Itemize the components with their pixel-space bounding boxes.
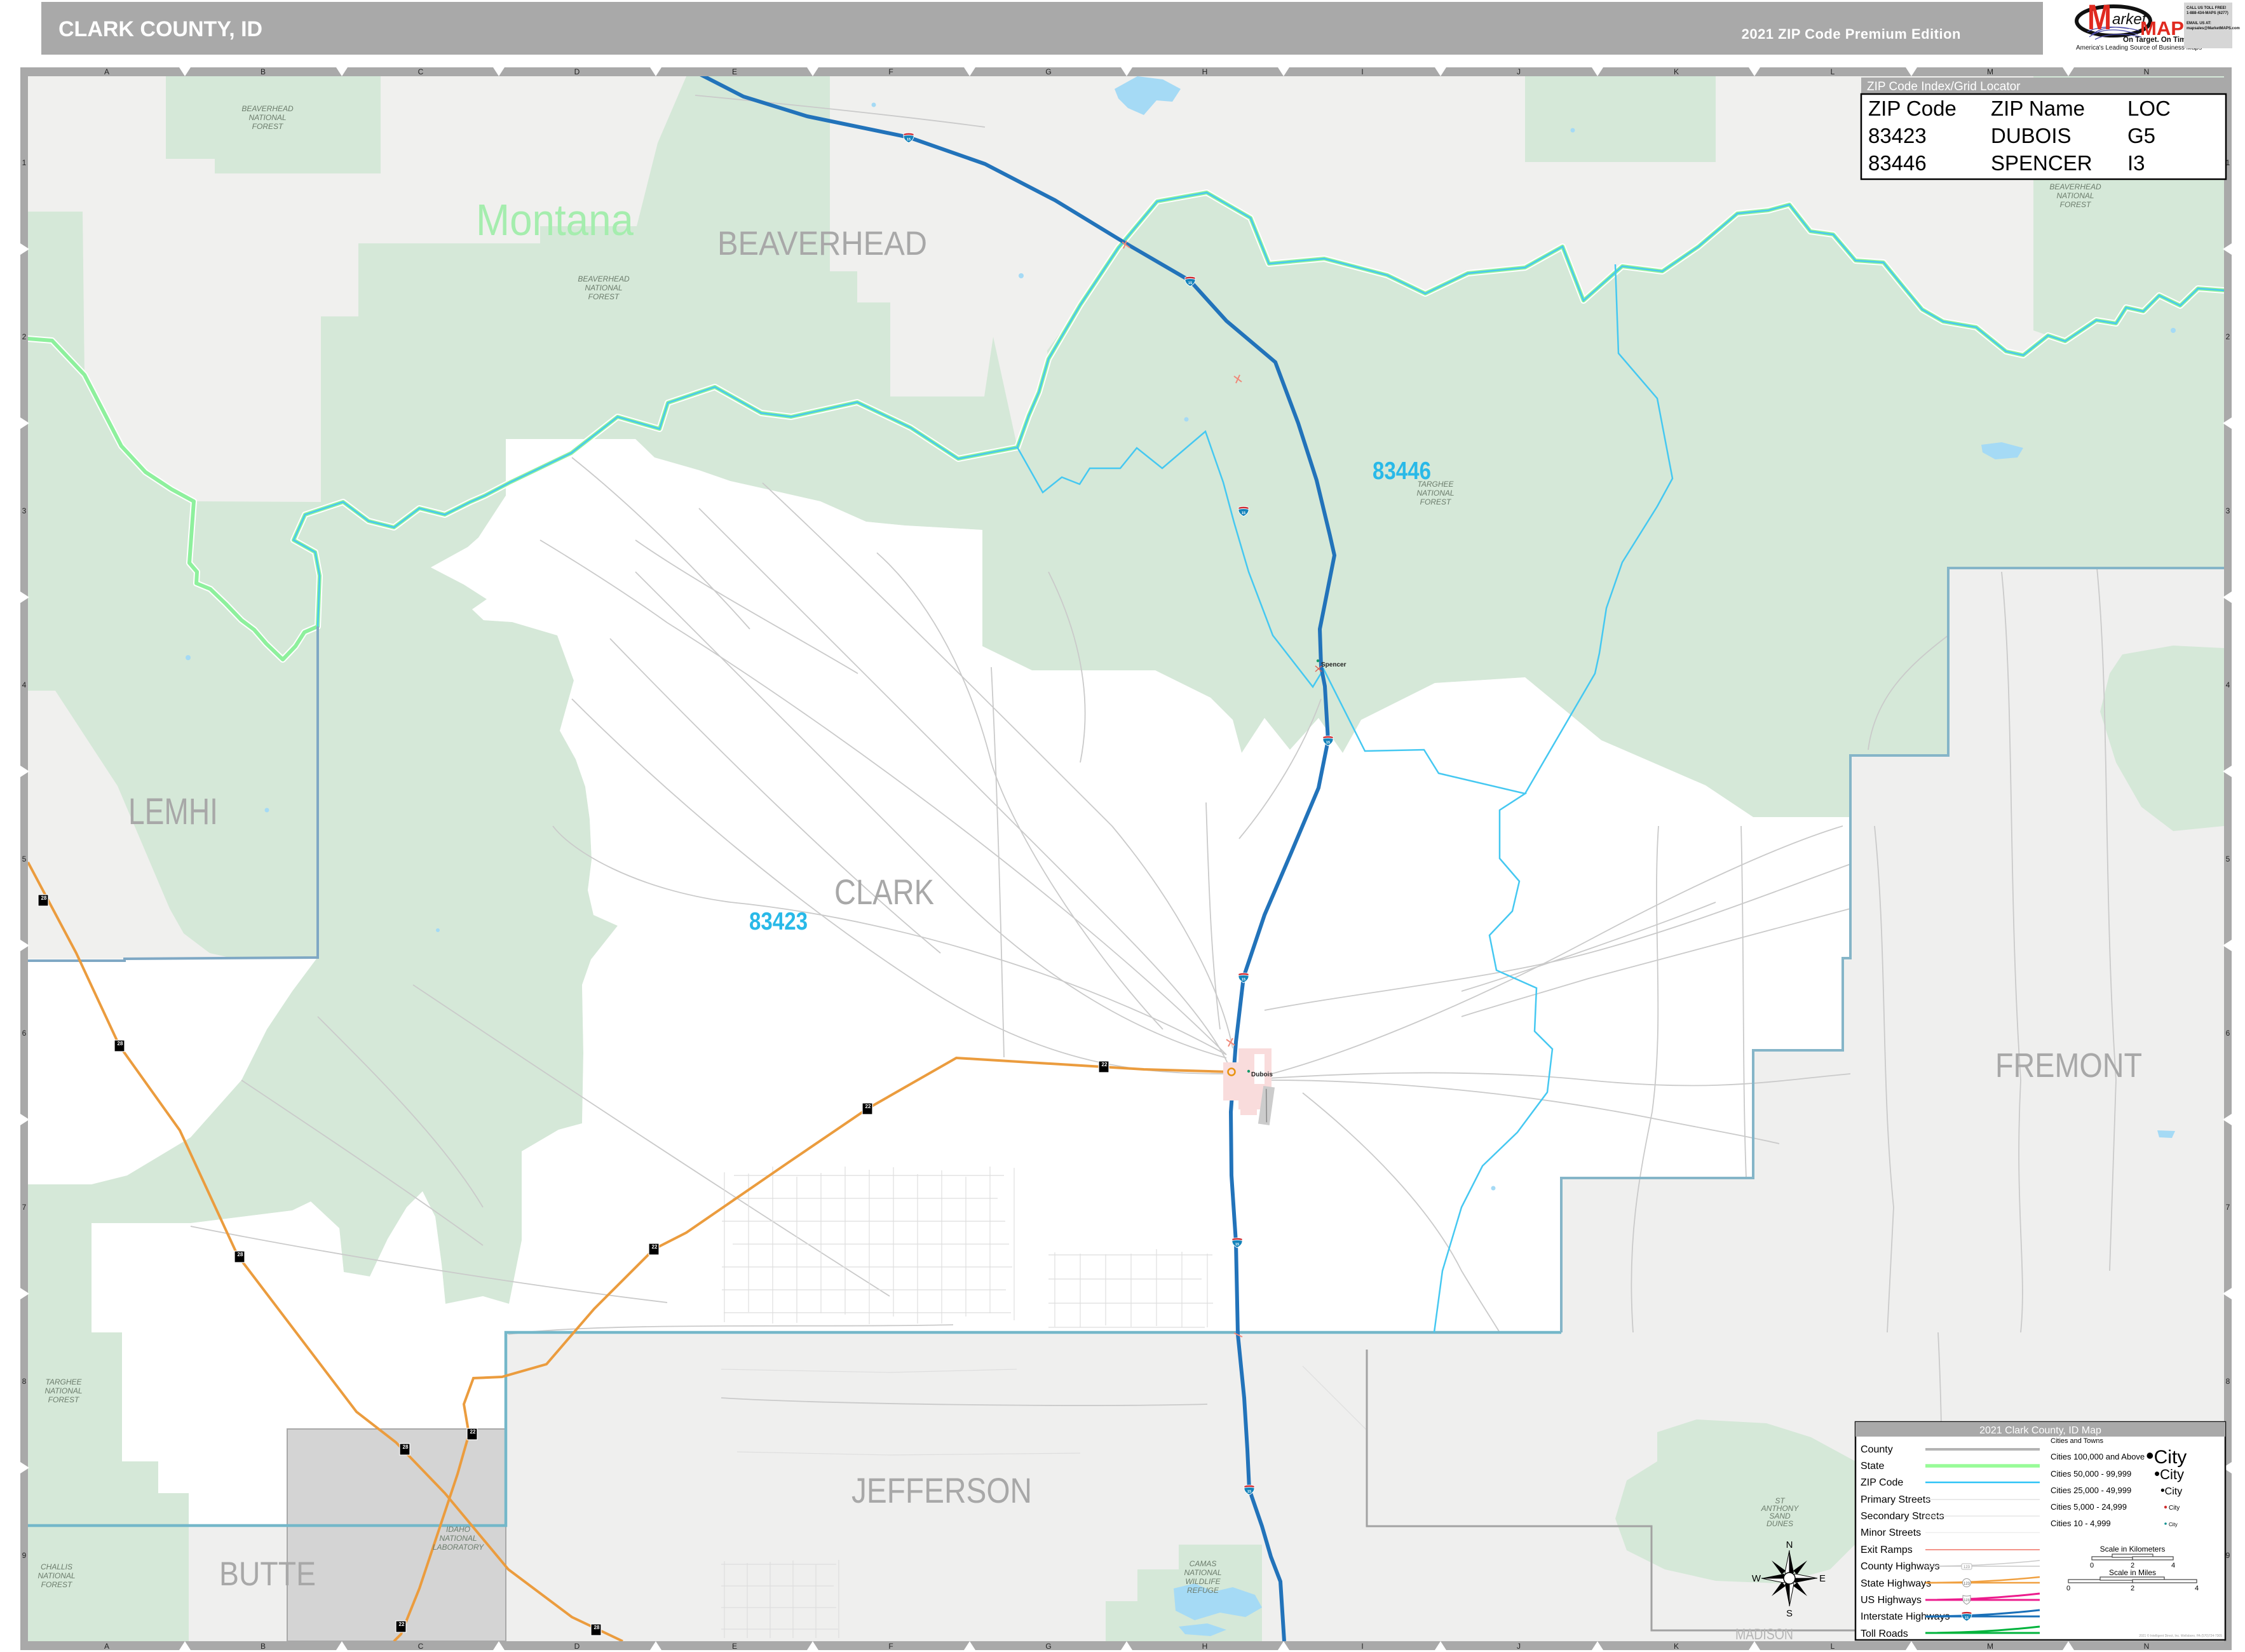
svg-text:Dubois: Dubois bbox=[1251, 1071, 1273, 1078]
svg-text:NATIONAL: NATIONAL bbox=[585, 283, 622, 292]
svg-text:mapsales@MarketMAPS.com: mapsales@MarketMAPS.com bbox=[2187, 27, 2240, 30]
svg-text:Cities 10 - 4,999: Cities 10 - 4,999 bbox=[2051, 1519, 2111, 1528]
svg-text:America's Leading Source of B: America's Leading Source of Business Map… bbox=[2076, 44, 2202, 51]
svg-text:N: N bbox=[1786, 1540, 1793, 1550]
svg-text:DUBOIS: DUBOIS bbox=[1991, 124, 2072, 147]
svg-text:J: J bbox=[1517, 67, 1521, 76]
svg-text:E: E bbox=[1819, 1573, 1826, 1584]
svg-text:123: 123 bbox=[1964, 1599, 1969, 1602]
svg-text:ZIP Code Index/Grid Locator: ZIP Code Index/Grid Locator bbox=[1867, 80, 2021, 93]
svg-text:S: S bbox=[1786, 1608, 1793, 1619]
svg-text:FOREST: FOREST bbox=[41, 1580, 73, 1589]
svg-text:3: 3 bbox=[2226, 506, 2230, 515]
svg-text:Scale in Kilometers: Scale in Kilometers bbox=[2100, 1545, 2166, 1554]
svg-text:83423: 83423 bbox=[749, 908, 808, 935]
svg-text:TARGHEE: TARGHEE bbox=[45, 1378, 82, 1386]
svg-text:E: E bbox=[732, 67, 737, 76]
svg-text:US Highways: US Highways bbox=[1861, 1595, 1922, 1606]
svg-text:Cities 100,000 and Above: Cities 100,000 and Above bbox=[2051, 1452, 2145, 1461]
svg-text:6: 6 bbox=[22, 1029, 27, 1038]
svg-text:C: C bbox=[418, 67, 424, 76]
svg-text:CLARK COUNTY, ID: CLARK COUNTY, ID bbox=[58, 17, 262, 41]
svg-text:Cities and Towns: Cities and Towns bbox=[2051, 1437, 2103, 1445]
svg-text:SPENCER: SPENCER bbox=[1991, 151, 2092, 175]
svg-text:H: H bbox=[1202, 67, 1208, 76]
svg-text:A: A bbox=[104, 67, 109, 76]
svg-text:NATIONAL: NATIONAL bbox=[1416, 489, 1454, 498]
svg-text:BUTTE: BUTTE bbox=[219, 1555, 316, 1593]
svg-text:Minor Streets: Minor Streets bbox=[1861, 1527, 1921, 1538]
svg-text:D: D bbox=[574, 1642, 580, 1651]
svg-text:IDAHO: IDAHO bbox=[446, 1525, 470, 1534]
svg-text:DUNES: DUNES bbox=[1767, 1519, 1793, 1528]
svg-text:W: W bbox=[1752, 1573, 1761, 1584]
svg-text:N: N bbox=[2144, 1642, 2150, 1651]
svg-text:On Target. On Time.: On Target. On Time. bbox=[2123, 36, 2192, 44]
svg-text:JEFFERSON: JEFFERSON bbox=[851, 1470, 1032, 1510]
svg-text:Exit Ramps: Exit Ramps bbox=[1861, 1545, 1913, 1555]
svg-text:Cities 5,000 - 24,999: Cities 5,000 - 24,999 bbox=[2051, 1502, 2127, 1512]
svg-text:I: I bbox=[1361, 1642, 1363, 1651]
svg-text:123: 123 bbox=[1964, 1582, 1970, 1586]
svg-text:7: 7 bbox=[2226, 1203, 2230, 1212]
svg-text:2021 ZIP Code Premium Edition: 2021 ZIP Code Premium Edition bbox=[1742, 26, 1961, 42]
svg-text:FOREST: FOREST bbox=[1420, 498, 1452, 506]
svg-text:NATIONAL: NATIONAL bbox=[37, 1571, 75, 1580]
svg-text:0: 0 bbox=[2066, 1585, 2070, 1592]
svg-text:BEAVERHEAD: BEAVERHEAD bbox=[717, 225, 927, 262]
svg-text:1: 1 bbox=[22, 158, 27, 167]
svg-text:Cities 50,000 - 99,999: Cities 50,000 - 99,999 bbox=[2051, 1469, 2131, 1479]
svg-text:NATIONAL: NATIONAL bbox=[2056, 191, 2094, 200]
svg-text:4: 4 bbox=[2171, 1562, 2175, 1569]
svg-text:F: F bbox=[888, 1642, 893, 1651]
svg-text:NATIONAL: NATIONAL bbox=[439, 1534, 477, 1543]
svg-text:C: C bbox=[418, 1642, 424, 1651]
svg-text:A: A bbox=[104, 1642, 109, 1651]
svg-text:L: L bbox=[1831, 67, 1835, 76]
svg-text:LABORATORY: LABORATORY bbox=[433, 1543, 484, 1552]
svg-text:ZIP Code: ZIP Code bbox=[1861, 1477, 1903, 1488]
svg-text:G5: G5 bbox=[2127, 124, 2155, 147]
svg-text:I3: I3 bbox=[2127, 151, 2145, 175]
svg-text:3: 3 bbox=[22, 506, 27, 515]
svg-text:0: 0 bbox=[2090, 1562, 2094, 1569]
svg-text:EMAIL US AT:: EMAIL US AT: bbox=[2187, 22, 2211, 25]
svg-text:NATIONAL: NATIONAL bbox=[1184, 1568, 1221, 1577]
svg-text:CALL US TOLL FREE!: CALL US TOLL FREE! bbox=[2187, 6, 2227, 10]
svg-text:5: 5 bbox=[22, 855, 27, 863]
svg-text:•City: •City bbox=[2160, 1484, 2182, 1498]
svg-text:N: N bbox=[2144, 67, 2150, 76]
svg-text:FREMONT: FREMONT bbox=[1995, 1046, 2142, 1085]
svg-text:4: 4 bbox=[2195, 1585, 2199, 1592]
svg-text:ZIP Name: ZIP Name bbox=[1991, 97, 2085, 120]
svg-text:4: 4 bbox=[2226, 680, 2230, 689]
svg-text:M: M bbox=[2087, 0, 2112, 37]
svg-text:4: 4 bbox=[22, 680, 27, 689]
svg-text:8: 8 bbox=[22, 1377, 27, 1386]
svg-text:M: M bbox=[1987, 1642, 1993, 1651]
svg-text:BEAVERHEAD: BEAVERHEAD bbox=[241, 104, 294, 113]
svg-text:FOREST: FOREST bbox=[48, 1395, 80, 1404]
svg-text:•City: •City bbox=[2146, 1442, 2187, 1468]
svg-text:State Highways: State Highways bbox=[1861, 1578, 1931, 1589]
svg-text:City: City bbox=[2169, 1505, 2180, 1512]
svg-text:7: 7 bbox=[22, 1203, 27, 1212]
svg-text:MADISON: MADISON bbox=[1735, 1626, 1793, 1643]
svg-text:83446: 83446 bbox=[1868, 151, 1927, 175]
svg-text:Spencer: Spencer bbox=[1321, 661, 1346, 668]
svg-text:FOREST: FOREST bbox=[588, 292, 620, 301]
svg-text:County: County bbox=[1861, 1444, 1893, 1455]
svg-text:6: 6 bbox=[2226, 1029, 2230, 1038]
svg-text:B: B bbox=[261, 1642, 266, 1651]
svg-text:M: M bbox=[1987, 67, 1993, 76]
svg-text:Cities 25,000 - 49,999: Cities 25,000 - 49,999 bbox=[2051, 1486, 2131, 1495]
svg-text:K: K bbox=[1674, 67, 1679, 76]
svg-text:CHALLIS: CHALLIS bbox=[41, 1562, 72, 1571]
svg-text:H: H bbox=[1202, 1642, 1208, 1651]
svg-text:G: G bbox=[1045, 67, 1051, 76]
svg-text:9: 9 bbox=[22, 1551, 27, 1560]
svg-text:Toll Roads: Toll Roads bbox=[1861, 1628, 1908, 1639]
svg-text:FOREST: FOREST bbox=[2060, 200, 2092, 209]
svg-text:I: I bbox=[1361, 67, 1363, 76]
svg-text:TARGHEE: TARGHEE bbox=[1417, 480, 1454, 489]
svg-text:CLARK: CLARK bbox=[834, 872, 934, 912]
svg-text:REFUGE: REFUGE bbox=[1187, 1586, 1219, 1595]
svg-text:Montana: Montana bbox=[476, 195, 634, 245]
svg-text:F: F bbox=[888, 67, 893, 76]
svg-text:2: 2 bbox=[22, 332, 27, 341]
svg-text:LOC: LOC bbox=[2127, 97, 2171, 120]
svg-text:CAMAS: CAMAS bbox=[1190, 1559, 1217, 1568]
svg-text:Scale in Miles: Scale in Miles bbox=[2109, 1568, 2156, 1577]
svg-text:D: D bbox=[574, 67, 580, 76]
svg-text:Primary Streets: Primary Streets bbox=[1861, 1494, 1930, 1505]
svg-text:LEMHI: LEMHI bbox=[128, 791, 218, 832]
svg-text:B: B bbox=[261, 67, 266, 76]
svg-text:9: 9 bbox=[2226, 1551, 2230, 1560]
svg-text:NATIONAL: NATIONAL bbox=[248, 113, 286, 122]
svg-text:WILDLIFE: WILDLIFE bbox=[1185, 1577, 1221, 1586]
svg-text:E: E bbox=[732, 1642, 737, 1651]
svg-text:8: 8 bbox=[2226, 1377, 2230, 1386]
svg-text:BEAVERHEAD: BEAVERHEAD bbox=[578, 274, 630, 283]
svg-text:1-888-434-MAPS (6277): 1-888-434-MAPS (6277) bbox=[2187, 11, 2228, 15]
svg-text:FOREST: FOREST bbox=[252, 122, 284, 131]
svg-text:K: K bbox=[1674, 1642, 1679, 1651]
svg-text:ZIP Code: ZIP Code bbox=[1868, 97, 1957, 120]
svg-text:123: 123 bbox=[1964, 1566, 1970, 1569]
svg-text:5: 5 bbox=[2226, 855, 2230, 863]
svg-text:2: 2 bbox=[2131, 1585, 2134, 1592]
svg-text:NATIONAL: NATIONAL bbox=[44, 1386, 82, 1395]
svg-text:City: City bbox=[2169, 1522, 2178, 1527]
svg-text:2021 Clark County, ID Map: 2021 Clark County, ID Map bbox=[1979, 1425, 2101, 1436]
svg-text:J: J bbox=[1517, 1642, 1521, 1651]
svg-text:BEAVERHEAD: BEAVERHEAD bbox=[2049, 182, 2101, 191]
svg-text:G: G bbox=[1045, 1642, 1051, 1651]
svg-text:L: L bbox=[1831, 1642, 1835, 1651]
svg-text:2021 © Intelligent Direct, Inc: 2021 © Intelligent Direct, Inc. Wellsbor… bbox=[2139, 1634, 2222, 1638]
svg-text:•City: •City bbox=[2154, 1464, 2184, 1483]
svg-text:83423: 83423 bbox=[1868, 124, 1927, 147]
svg-text:State: State bbox=[1861, 1461, 1884, 1472]
svg-text:2: 2 bbox=[2226, 332, 2230, 341]
